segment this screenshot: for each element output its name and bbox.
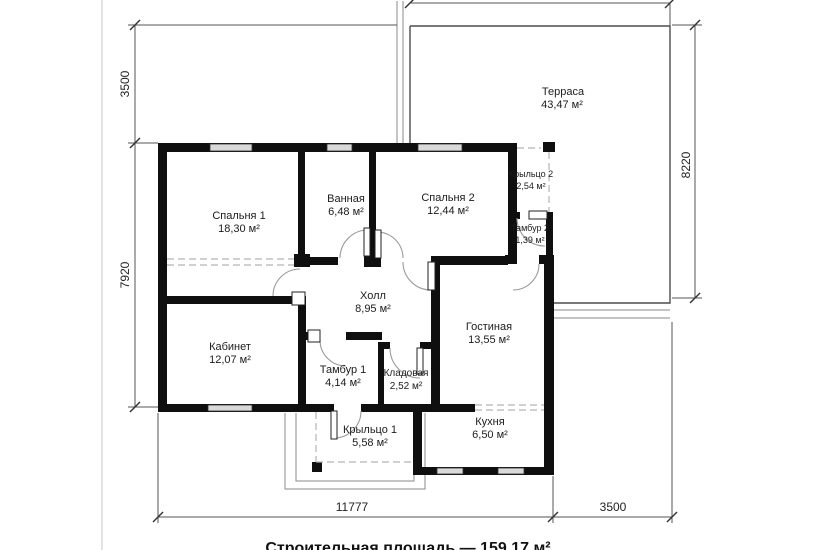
room-area-holl: 8,95 м² <box>355 303 391 315</box>
room-label-kabinet: Кабинет <box>209 341 251 353</box>
room-label-kryltso-2: Крыльцо 2 <box>509 169 553 179</box>
room-area-kabinet: 12,07 м² <box>209 354 251 366</box>
room-area-kryltso-2: 2,54 м² <box>516 181 545 191</box>
door-leaf <box>529 211 547 219</box>
room-label-terrasa: Терраса <box>542 86 585 98</box>
room-label-vannaya: Ванная <box>327 193 365 205</box>
room-area-kladovaya: 2,52 м² <box>390 381 423 392</box>
wall-segment <box>167 296 293 304</box>
wall-segment <box>158 143 167 412</box>
floor-plan-canvas: 3500 7920 8220 11777 3500 Спальня 1 18,3… <box>0 0 825 550</box>
room-area-terrasa: 43,47 м² <box>541 99 583 111</box>
dim-right: 8220 <box>679 151 693 178</box>
door-leaf <box>428 262 435 290</box>
wall-segment <box>413 467 554 475</box>
room-label-spalnya-1: Спальня 1 <box>212 210 265 222</box>
wall-segment <box>346 332 382 340</box>
room-label-spalnya-2: Спальня 2 <box>421 192 474 204</box>
dim-bottom-right: 3500 <box>600 500 627 514</box>
room-label-holl: Холл <box>360 290 386 302</box>
wall-segment <box>543 142 555 152</box>
wall-segment <box>294 257 338 265</box>
dim-bottom: 11777 <box>336 500 369 514</box>
room-area-vannaya: 6,48 м² <box>328 206 364 218</box>
wall-segment <box>544 256 554 475</box>
wall-segment <box>508 212 520 219</box>
window-icon <box>327 144 352 151</box>
room-label-gostinaya: Гостиная <box>466 321 512 333</box>
window-icon <box>210 144 252 151</box>
room-area-tambur-2: 1,39 м² <box>515 235 544 245</box>
wall-segment <box>361 404 417 412</box>
wall-segment <box>422 404 475 412</box>
room-area-kryltso-1: 5,58 м² <box>352 437 388 449</box>
door-arc <box>403 262 431 290</box>
door-arc <box>513 264 539 290</box>
wall-segment <box>431 256 508 265</box>
wall-segment <box>312 462 322 472</box>
window-icon <box>208 405 252 411</box>
door-arc <box>320 340 346 366</box>
wall-segment <box>413 404 422 475</box>
door-leaf <box>364 228 370 256</box>
room-area-kuhnya: 6,50 м² <box>472 429 508 441</box>
room-area-tambur-1: 4,14 м² <box>325 377 361 389</box>
wall-segment <box>505 255 517 264</box>
dim-top-left: 3500 <box>118 70 132 97</box>
door-leaf <box>331 411 337 439</box>
plan-caption: Строительная площадь — 159,17 м² <box>265 540 550 550</box>
window-icon <box>437 468 463 474</box>
room-label-kuhnya: Кухня <box>475 416 504 428</box>
dim-left: 7920 <box>118 261 132 288</box>
door-threshold <box>308 330 320 342</box>
window-icon <box>418 144 462 151</box>
wall-segment <box>298 296 306 412</box>
door-leaf <box>375 230 381 258</box>
floor-plan-page: 3500 7920 8220 11777 3500 Спальня 1 18,3… <box>0 0 825 550</box>
room-area-gostinaya: 13,55 м² <box>468 334 510 346</box>
door-threshold <box>292 292 305 305</box>
room-area-spalnya-2: 12,44 м² <box>427 205 469 217</box>
room-label-tambur-2: Тамбур 2 <box>511 223 549 233</box>
room-area-spalnya-1: 18,30 м² <box>218 223 260 235</box>
wall-segment <box>298 150 305 256</box>
room-label-kryltso-1: Крыльцо 1 <box>343 424 397 436</box>
room-label-tambur-1: Тамбур 1 <box>320 364 367 376</box>
window-icon <box>498 468 524 474</box>
room-label-kladovaya: Кладовая <box>384 368 429 379</box>
